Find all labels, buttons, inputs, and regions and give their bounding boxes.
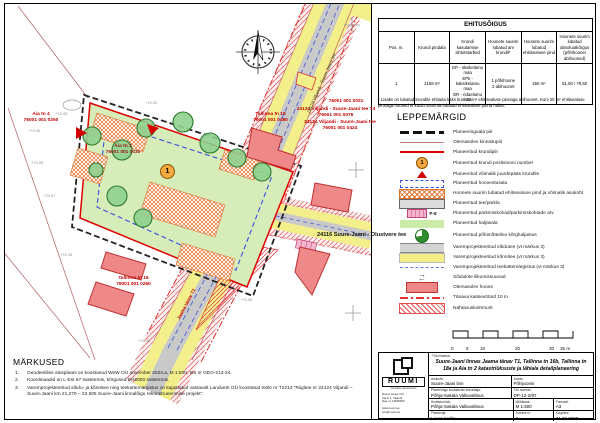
- legend-item: Planeeritud tee/parkla: [397, 199, 594, 209]
- work-title: Suure-Jaani linnas Jaama tänav T1, Talli…: [432, 359, 590, 372]
- scale-bar: 0 5 10 20 30 35 m: [452, 327, 578, 349]
- korraldaja-cell: Planeeringu koostamise korraldaja:Põhja-…: [429, 388, 512, 399]
- legend-item: Planeeritud põhimõtteline kõrghaljastus: [397, 229, 594, 243]
- parcel-label-aia-2: Aia tn 276001 001 0030: [98, 144, 148, 156]
- visibility-triangle-swatch: [399, 303, 445, 314]
- green-area-swatch: [400, 220, 444, 228]
- joonise-nr-cell: Joonise nr:3: [514, 411, 553, 422]
- legend-item: Planeeritud hoonestusala: [397, 179, 594, 189]
- existing-building-swatch: [406, 282, 438, 293]
- legend-item: P-8Planeeritud parkimiskohad/parkimiskoh…: [397, 209, 594, 219]
- logo-subtitle: ruumiline planeerimine: [382, 387, 425, 390]
- legend-item: Olemasolev hoone: [397, 282, 594, 293]
- building-rights-table: EHITUSÕIGUS Pos. nr. Krundi pindala Krun…: [378, 18, 593, 105]
- building-zone-swatch: [400, 180, 444, 188]
- road-label-t4: 24124 Viljandi - Suure-Jaani tee T476001…: [276, 107, 396, 119]
- parcel-label-tallinna-16: Tallinna tn 1676001 001 0260: [106, 276, 161, 288]
- plot-position-number: 1: [160, 164, 175, 179]
- col-header: Krundi kasutamise sihtotstarbed: [450, 32, 486, 64]
- legend-item: Hoonete suurim lubatud ehitisealune pind…: [397, 189, 594, 199]
- formaat-cell: Formaat:A3: [553, 399, 593, 410]
- plan-sheet: Aia tn 476001 001 0250 Tallinna tn 18760…: [0, 0, 600, 423]
- parking-swatch: [407, 209, 427, 218]
- north-compass: [236, 30, 280, 74]
- legend-item: Nähtavuskolmnurk: [397, 303, 594, 314]
- col-header: Krundi pindala: [414, 32, 450, 64]
- kuupaev-cell: Kuupäev:31.03.2025: [553, 411, 593, 422]
- planeerija-cell: Planeerija:Laura Andla: [429, 411, 514, 422]
- elevation-mark: +74.18: [60, 252, 72, 257]
- prev-road-swatch: [400, 243, 444, 253]
- asukoht-cell: Asukoht:Suure-Jaani linn: [429, 376, 512, 387]
- legend-item: Olemasolev kinnistupiir: [397, 138, 594, 148]
- legend-item: Planeeritud võimalik juurdepääs krundile: [397, 169, 594, 179]
- legend-item: Planeeritud haljasala: [397, 219, 594, 229]
- elevation-mark: +73.95: [240, 297, 252, 302]
- toonumber-cell: Töö number:DP-12-2/97: [512, 388, 594, 399]
- road-parcel-code: 76001 001 0021: [316, 99, 376, 105]
- footprint-hatch-swatch: [399, 189, 445, 199]
- grid-crosses: [344, 17, 364, 321]
- tree-icon: [415, 229, 429, 243]
- huvitatud-cell: Huvitatud isik:Põhja-Sakala Vallavalitsu…: [429, 399, 514, 410]
- scale-bar-steps: [452, 328, 574, 340]
- elevation-mark: +74.40: [28, 128, 40, 133]
- existing-boundary-swatch: [400, 142, 444, 143]
- legend: LEPPEMÄRGID Planeeringuala piir Olemasol…: [397, 112, 594, 314]
- table-footnote: * Lisaks on lubatud krundile ehitada kak…: [378, 97, 592, 108]
- notes-section: MÄRKUSED 1.Geodeetilise alusplaani on ko…: [13, 357, 365, 400]
- road-label-main: 24124 Viljandi - Suure-Jaani tee76001 00…: [280, 120, 400, 132]
- parcel-label-aia-4: Aia tn 476001 001 0250: [16, 112, 66, 124]
- scale-tick-labels: 0 5 10 20 30 35 m: [452, 345, 578, 352]
- table-title: EHITUSÕIGUS: [379, 19, 593, 32]
- road-label-olustvere: 24116 Suure-Jaani - Olustvere tee: [317, 232, 406, 238]
- note-item: 1.Geodeetilise alusplaani on koostanud W…: [13, 371, 365, 377]
- note-item: 2.Koordinaadid on L-Est 97 süsteemis, kõ…: [13, 378, 365, 384]
- col-header: Hoonete suurim lubatud arv krundil*: [485, 32, 521, 64]
- access-triangle-swatch: [417, 171, 427, 178]
- elevation-mark: +74.22: [145, 100, 157, 105]
- logo-mark-icon: [393, 357, 415, 375]
- legend-item: 1Planeeritud krundi positsiooni number: [397, 157, 594, 169]
- title-block: RUUMI ruumiline planeerimine Ruumi Grupp…: [378, 352, 594, 419]
- col-header: Hoonete suurim lubatud ehitisealune pind: [521, 32, 557, 64]
- col-header: Hoonete suurim lubatud absoluutkõrgus (p…: [557, 32, 593, 64]
- work-title-cell: Töö nimetus: Suure-Jaani linnas Jaama tä…: [429, 353, 593, 376]
- position-number-swatch: 1: [416, 157, 428, 169]
- planning-boundary-swatch: [400, 131, 444, 134]
- traffic-direction-icon: →←: [418, 273, 426, 282]
- legend-item: Varemprojekteeritud sõidutee (vt märkus …: [397, 243, 594, 253]
- elevation-mark: +74.36: [138, 338, 150, 343]
- elevation-mark: +74.05: [31, 160, 43, 165]
- panel-divider: [371, 3, 372, 420]
- title-block-fields: Töö nimetus: Suure-Jaani linnas Jaama tä…: [429, 353, 593, 418]
- landscape-feature: [63, 100, 81, 110]
- road-marking-swatch: [400, 267, 444, 268]
- notes-title: MÄRKUSED: [13, 357, 365, 367]
- legend-item: Varemprojekteeritud teekattemärgistus (v…: [397, 263, 594, 273]
- legend-title: LEPPEMÄRGID: [397, 112, 594, 122]
- elevation-mark: +74.07: [43, 193, 55, 198]
- legend-item: Varemprojekteeritud kõnnitee (vt märkus …: [397, 253, 594, 263]
- legend-item: Tänava kaitsevöönd 10 m: [397, 293, 594, 303]
- road-parking-swatch: [399, 199, 445, 209]
- note-item: 3.Varemprojekteeritud sõidu- ja kõnnitee…: [13, 386, 365, 399]
- prev-sidewalk-swatch: [399, 253, 445, 263]
- existing-parcel-lines: [5, 6, 95, 360]
- company-logo: RUUMI ruumiline planeerimine Ruumi Grupp…: [379, 353, 429, 418]
- mootkava-cell: Mõõtkava:M 1:500: [514, 399, 553, 410]
- legend-item: →←Sõidukite liikumissuunad: [397, 272, 594, 282]
- joonis-cell: Joonis:Põhijoonis: [512, 376, 594, 387]
- protection-zone-swatch: [400, 297, 444, 299]
- col-header: Pos. nr.: [379, 32, 415, 64]
- plot-boundary-swatch: [400, 151, 444, 153]
- legend-item: Planeeritud krundipiir: [397, 148, 594, 158]
- logo-name: RUUMI: [382, 377, 425, 387]
- legend-item: Planeeringuala piir: [397, 128, 594, 138]
